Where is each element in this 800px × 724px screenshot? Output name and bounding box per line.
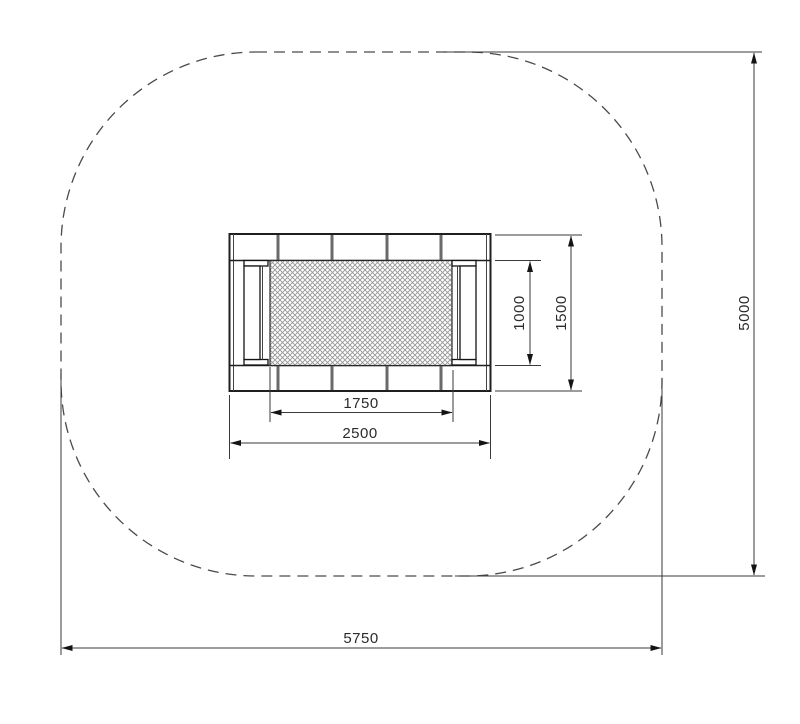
dim-label-zone-height: 5000 [736,295,753,330]
anchor-cap-top-left [244,261,268,267]
trampoline-top-view [230,234,491,391]
dimension-mat-height: 1000 [495,261,541,366]
dim-label-frame-height: 1500 [553,295,570,330]
spring-bar-plate-left [244,266,260,360]
drawing-page: 1000 1500 1750 2500 5000 5750 [0,0,800,724]
anchor-cap-bottom-right [452,360,476,366]
anchor-cap-bottom-left [244,360,268,366]
dimension-frame-height: 1500 [495,235,582,391]
dim-label-zone-width: 5750 [343,630,378,647]
jumping-mat [270,261,452,366]
spring-bar-plate-right [460,266,476,360]
dim-label-mat-height: 1000 [511,295,528,330]
dim-label-frame-width: 2500 [342,425,377,442]
technical-drawing-canvas: 1000 1500 1750 2500 5000 5750 [0,0,800,724]
anchor-cap-top-right [452,261,476,267]
dimension-zone-width: 5750 [61,374,662,655]
dim-label-mat-width: 1750 [343,395,378,412]
